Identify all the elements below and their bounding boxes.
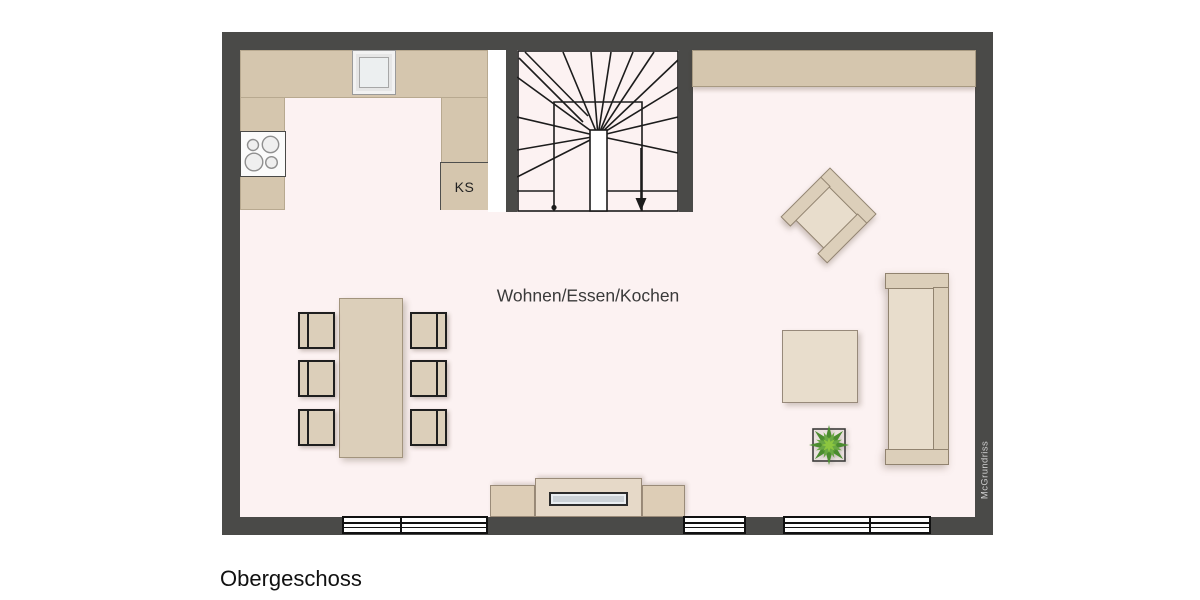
burner <box>248 140 259 151</box>
chair-backrest <box>300 362 309 395</box>
burner <box>245 153 263 171</box>
room-label: Wohnen/Essen/Kochen <box>497 286 680 307</box>
watermark: McGrundriss <box>980 441 991 499</box>
dining-chair <box>410 360 447 397</box>
cooktop <box>240 131 286 177</box>
dining-table <box>339 298 403 458</box>
stairwell-wall-left <box>506 50 517 212</box>
kitchen-sink <box>352 50 396 95</box>
tv-lowboard <box>535 478 642 517</box>
window <box>683 516 746 534</box>
window <box>783 516 871 534</box>
refrigerator: KS <box>440 162 488 210</box>
tv-screen <box>549 492 628 506</box>
chair-backrest <box>436 314 445 347</box>
coffee-table <box>782 330 858 403</box>
armchair <box>783 167 876 260</box>
potted-plant <box>808 424 850 466</box>
dining-chair <box>298 312 335 349</box>
burner <box>266 157 278 169</box>
window <box>342 516 402 534</box>
dining-chair <box>410 312 447 349</box>
sideboard <box>692 50 976 87</box>
floorplan-canvas: KS <box>0 0 1200 600</box>
cooktop-burners <box>241 132 284 175</box>
wall-opening <box>488 50 506 212</box>
tv-cabinet-left <box>490 485 535 517</box>
plant-leaves-inner <box>821 437 837 453</box>
sink-basin <box>359 57 389 88</box>
floorplan: KS <box>222 32 993 535</box>
chair-backrest <box>300 411 309 444</box>
stair-start-dot <box>551 205 556 210</box>
window <box>400 516 488 534</box>
stair-spine <box>590 130 607 211</box>
sofa-seat <box>888 288 934 450</box>
chair-backrest <box>300 314 309 347</box>
sofa <box>885 273 949 465</box>
sofa-armrest-bottom <box>885 449 949 465</box>
staircase <box>517 50 679 212</box>
dining-chair <box>298 360 335 397</box>
burner <box>262 136 278 152</box>
dining-chair <box>410 409 447 446</box>
floor-title: Obergeschoss <box>220 566 362 592</box>
stairwell-wall-right <box>679 50 693 212</box>
chair-backrest <box>436 362 445 395</box>
chair-backrest <box>436 411 445 444</box>
tv-cabinet-right <box>642 485 685 517</box>
kitchen-counter-right <box>441 97 488 163</box>
window <box>869 516 931 534</box>
dining-chair <box>298 409 335 446</box>
sofa-backrest <box>933 287 949 451</box>
refrigerator-label: KS <box>455 179 475 195</box>
